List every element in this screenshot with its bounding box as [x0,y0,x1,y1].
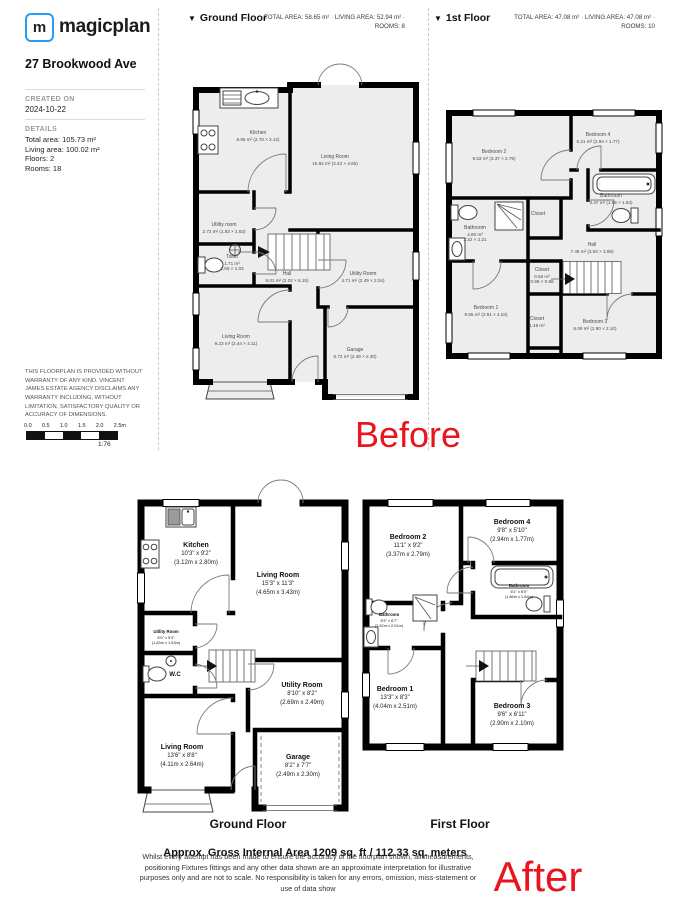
floorplan-comparison-sheet: m magicplan 27 Brookwood Ave CREATED ON … [0,0,680,907]
after-annotation: After [494,853,583,901]
toilet-icon [451,205,477,220]
detail-rooms: Rooms: 18 [25,164,61,173]
created-on-value: 2024-10-22 [25,105,66,114]
room-label: Bedroom 29.53 m² (3.37 × 2.79) [472,149,515,161]
room-label: Kitchen8.66 m² (2.78 × 3.12) [236,130,279,142]
collapse-triangle-icon: ▼ [434,14,442,23]
scale-bar [26,431,118,440]
room-label: Bedroom 18.65 m² (2.51 × 4.04) [464,305,507,317]
detail-living-area: Living area: 100.02 m² [25,145,100,154]
first-floor-title: 1st Floor [446,12,490,24]
room-label: Bedroom 49'8" x 5'10"(2.94m x 1.77m) [490,518,534,544]
first-floor-caption: First Floor [430,817,489,831]
room-label: Garage5.72 m² (2.49 × 2.30) [333,347,376,359]
kitchen-sink-icon [166,507,196,527]
created-on-label: CREATED ON [25,96,75,103]
property-address: 27 Brookwood Ave [25,57,137,71]
logo-wordmark: magicplan [59,16,150,38]
room-label: Bedroom 36.09 m² (2.90 × 2.10) [573,319,616,331]
magicplan-logo-icon: m [25,13,54,42]
first-floor-stats: TOTAL AREA: 47.08 m² · LIVING AREA: 47.0… [512,14,655,32]
toilet-icon [612,208,638,223]
ground-floor-stats: TOTAL AREA: 58.65 m² · LIVING AREA: 52.9… [262,14,405,32]
stove-icon [141,540,159,568]
divider [25,119,145,120]
room-label: Bathroom4.60 m²2.32 × 2.21 [463,225,486,243]
room-label: Living Room15'3" x 11'3"(4.65m x 3.43m) [256,571,300,597]
column-separator [158,8,159,450]
stove-icon [198,126,218,154]
warranty-disclaimer: THIS FLOORPLAN IS PROVIDED WITHOUT WARRA… [25,368,145,420]
washbasin-icon [364,627,378,647]
bathtub-icon [593,174,655,194]
before-annotation: Before [355,414,461,456]
detail-total-area: Total area: 105.73 m² [25,135,96,144]
room-label: Garage8'2" x 7'7"(2.49m x 2.30m) [276,753,320,779]
shower-icon [413,595,437,621]
floor-header-first[interactable]: ▼ 1st Floor [434,12,490,24]
shower-icon [495,202,523,230]
room-label: Bedroom 113'3" x 8'3"(4.04m x 2.51m) [373,685,417,711]
room-label: Utility Room8'10" x 8'2"(2.69m x 2.49m) [280,681,324,707]
room-label: Living Room15.92 m² (3.43 × 4.65) [312,154,358,166]
divider [25,89,145,90]
column-separator [428,8,429,450]
ground-floor-caption: Ground Floor [210,817,287,831]
room-label: Toilet1.71 m²1.66 × 1.03 [220,254,243,272]
room-label: Closet1.48 m² [529,316,545,328]
room-label: Hall8.01 m² (2.02 × 6.15) [265,271,308,283]
kitchen-sink-icon [220,88,278,108]
toilet-icon [143,666,166,682]
room-label: Bathroom6'1" x 6'0"(1.86m x 1.84m) [505,583,533,599]
room-label: Bathroom8'3" x 6'7"(2.52m x 2.01m) [375,612,403,628]
logo-letter: m [33,19,46,36]
room-label: Hall7.49 m² (3.04 × 3.89) [570,242,613,254]
room-label: Bedroom 45.21 m² (2.94 × 1.77) [576,132,619,144]
room-label: W.C [169,671,180,679]
scale-bar-ticks: 0.00.51.01.52.02.5m [24,423,126,429]
floor-header-ground[interactable]: ▼ Ground Floor [188,12,267,24]
scale-ratio: 1:76 [98,441,111,448]
collapse-triangle-icon: ▼ [188,14,196,23]
room-label: Utility Room4.71 m² (2.49 × 2.04) [341,271,384,283]
ground-floor-title: Ground Floor [200,12,267,24]
room-label: Bedroom 211'1" x 9'2"(3.37m x 2.79m) [386,533,430,559]
room-label: Bedroom 39'6" x 6'11"(2.90m x 2.10m) [490,702,534,728]
room-label: Closet0.66 m²0.98 × 0.68 [530,267,553,285]
washbasin-icon [166,656,176,666]
details-label: DETAILS [25,126,57,133]
room-label: Bathroom3.47 m² (1.86 × 1.84) [589,193,632,205]
room-label: Utility room2.72 m² (1.83 × 1.63) [202,222,245,234]
detail-floors: Floors: 2 [25,154,54,163]
room-label: Living Room9.23 m² (2.44 × 4.11) [215,334,258,346]
footer-disclaimer: Whilst every attempt has been made to en… [138,852,478,894]
room-label: Kitchen10'3" x 9'2"(3.12m x 2.80m) [174,541,218,567]
toilet-icon [198,257,223,273]
room-label: Utility Room6'0" x 5'4"(1.83m x 1.63m) [152,629,180,645]
before-ground-floor-plan [190,62,420,408]
room-label: Living Room13'6" x 8'8"(4.11m x 2.64m) [160,743,203,769]
room-label: Closet [531,211,545,218]
